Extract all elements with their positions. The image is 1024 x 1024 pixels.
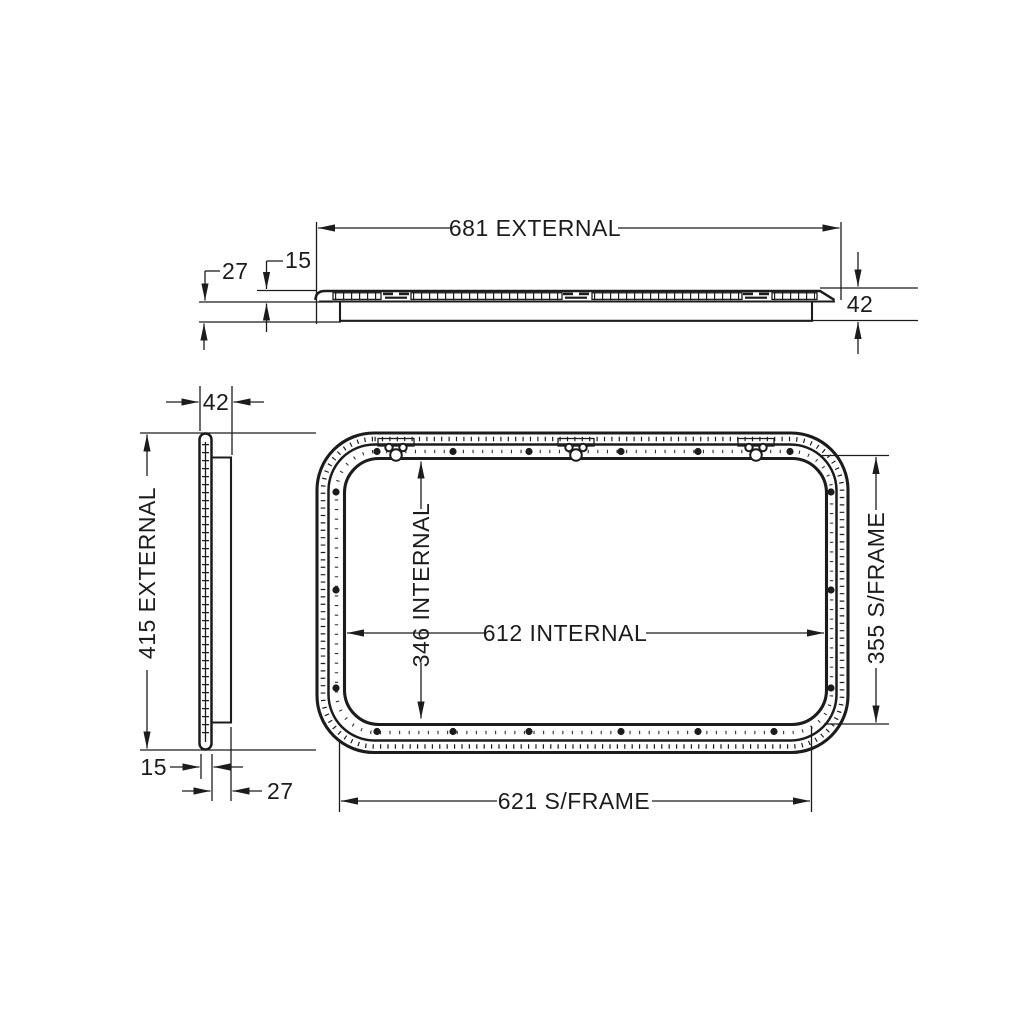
dim-label-346-internal: 346 INTERNAL xyxy=(408,503,434,668)
dim-label-42-top-right: 42 xyxy=(847,291,874,317)
dim-label-27-side: 27 xyxy=(267,778,294,804)
dim-label-355-sframe: 355 S/FRAME xyxy=(863,512,889,665)
side-skirt xyxy=(212,458,232,723)
screw-hole xyxy=(770,728,777,735)
screw-hole xyxy=(827,586,834,593)
dim-label-612-internal: 612 INTERNAL xyxy=(483,620,648,646)
screw-hole xyxy=(449,448,456,455)
hatch-technical-drawing: 681 EXTERNAL xyxy=(0,0,1024,1024)
frame-outer-edge xyxy=(317,433,848,753)
screw-hole xyxy=(373,448,380,455)
dim-label-681-external: 681 EXTERNAL xyxy=(449,215,621,241)
drawing-canvas: 681 EXTERNAL xyxy=(0,0,1024,1024)
hinge-mark-left xyxy=(383,293,409,299)
screw-hole xyxy=(525,448,532,455)
screw-hole xyxy=(332,586,339,593)
dim-label-415-external: 415 EXTERNAL xyxy=(134,487,160,659)
profile-skirt xyxy=(340,302,812,321)
dim-label-27-top: 27 xyxy=(222,258,249,284)
top-profile-view: 681 EXTERNAL xyxy=(199,215,918,354)
dim-label-15-side: 15 xyxy=(140,754,167,780)
screw-hole xyxy=(617,448,624,455)
hinge-mark-center xyxy=(563,293,589,299)
screw-hole xyxy=(449,728,456,735)
screw-hole xyxy=(332,684,339,691)
screw-hole xyxy=(694,448,701,455)
side-profile-view: 42 415 EXTERNAL 15 27 xyxy=(134,386,316,804)
screw-hole xyxy=(827,488,834,495)
dim-label-621-sframe: 621 S/FRAME xyxy=(498,788,651,814)
dim-label-42-side: 42 xyxy=(203,389,230,415)
screw-hole xyxy=(694,728,701,735)
hinge-mark-right xyxy=(743,293,769,299)
screw-hole xyxy=(332,488,339,495)
screw-hole xyxy=(373,728,380,735)
front-view: 346 INTERNAL 612 INTERNAL 355 S/FRAME 62… xyxy=(317,433,889,814)
screw-hole xyxy=(786,448,793,455)
screw-hole xyxy=(827,684,834,691)
frame-stitch-band xyxy=(323,439,842,747)
screw-hole xyxy=(525,728,532,735)
frame-middle-edge xyxy=(329,445,837,741)
dim-label-15-top: 15 xyxy=(285,247,312,273)
screw-hole xyxy=(617,728,624,735)
